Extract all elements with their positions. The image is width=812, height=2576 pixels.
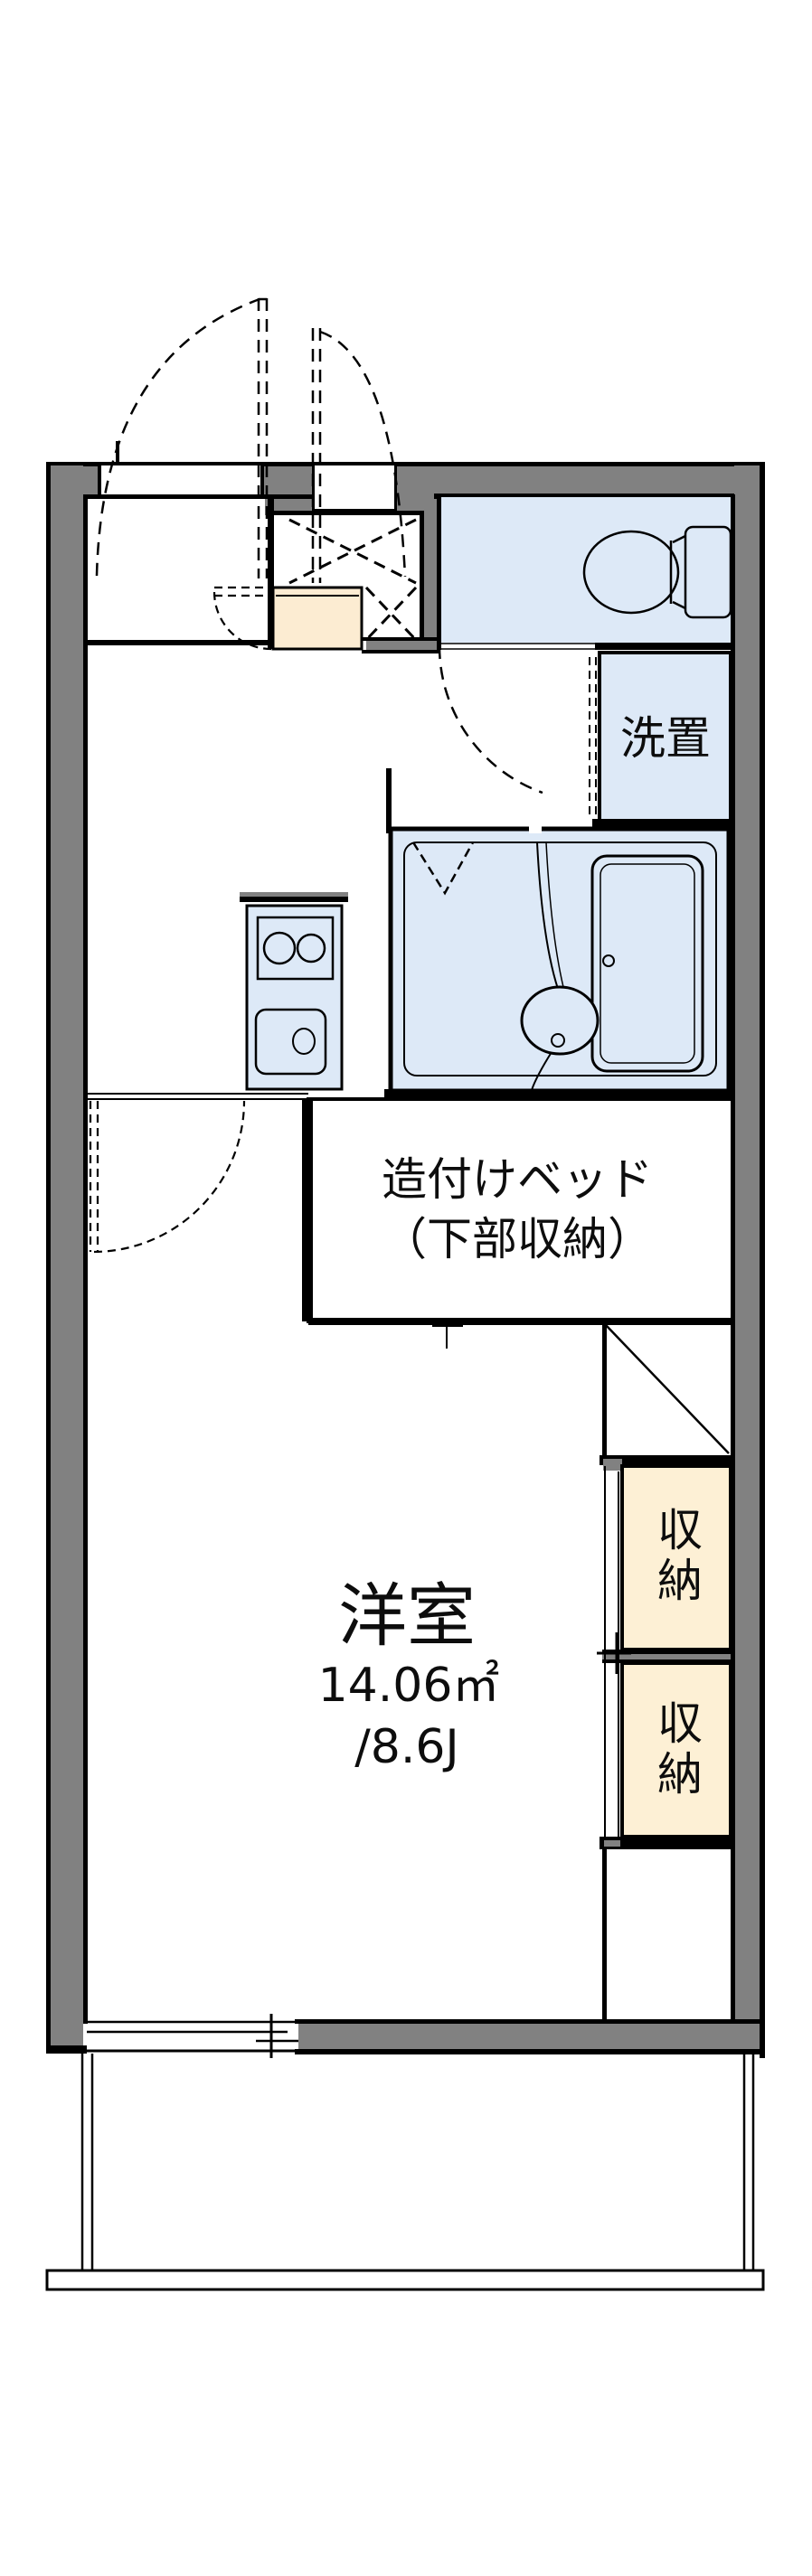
- label-room-area: 14.06㎡: [318, 1659, 500, 1713]
- entry-side-window: [98, 465, 264, 494]
- bath-wall-gap: [529, 826, 542, 833]
- label-room-tatami: /8.6J: [354, 1720, 459, 1774]
- floorplan-drawing: 洗置 造付けベッド （下部収納） 洋室 14.06㎡ /8.6J 収納 収納: [0, 0, 812, 2576]
- label-storage-top: 収納: [650, 1506, 703, 1607]
- laundry-door: [590, 657, 596, 819]
- bath-stool: [522, 987, 598, 1054]
- hall-room-door-swing: [90, 1101, 244, 1252]
- label-storage-bottom: 収納: [650, 1699, 703, 1800]
- balcony-railing: [47, 2270, 763, 2289]
- entrance-door-swing: [97, 298, 405, 583]
- entry-inner-door-swing: [214, 588, 271, 649]
- hall-washroom-wall: [386, 768, 392, 833]
- balcony: [47, 2054, 763, 2289]
- floorplan-page: 洗置 造付けベッド （下部収納） 洋室 14.06㎡ /8.6J 収納 収納: [0, 0, 812, 2576]
- label-bed-line2: （下部収納）: [382, 1213, 653, 1265]
- toilet-door-swing: [439, 646, 543, 793]
- label-laundry: 洗置: [620, 712, 711, 765]
- entry-step: [273, 588, 362, 649]
- kitchen-unit: [240, 892, 348, 1089]
- hall-room-boundary: [87, 1094, 308, 1099]
- entry-hall-walls: [83, 494, 441, 653]
- balcony-window: [87, 2014, 298, 2058]
- label-room-name: 洋室: [338, 1575, 476, 1656]
- laundry-bottom-wall: [592, 819, 734, 827]
- fridge-space: [600, 1321, 734, 1471]
- toilet-fixture: [584, 527, 731, 617]
- label-bed-line1: 造付けベッド: [382, 1153, 653, 1206]
- toilet-walls: [440, 643, 734, 650]
